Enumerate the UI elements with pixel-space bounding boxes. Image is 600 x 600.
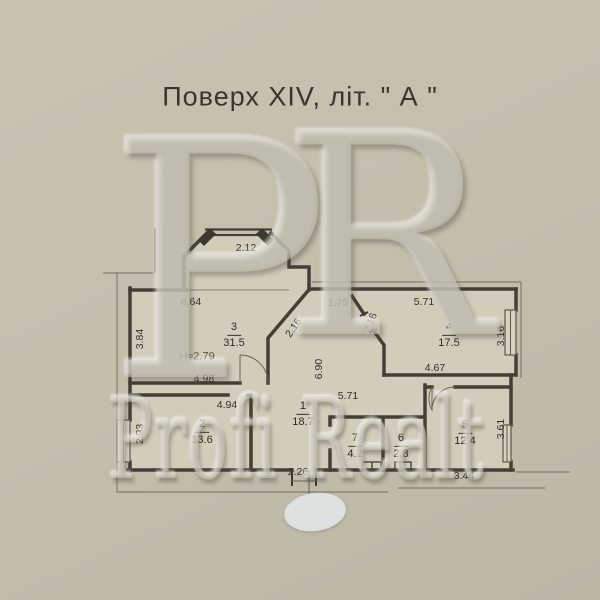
dim-room5-right: 3.61 [496, 419, 507, 439]
dim-room4-top: 5.71 [414, 297, 434, 308]
room-5-number: 5 [458, 419, 472, 434]
room-1-number: 1 [296, 400, 310, 415]
floor-plan-page: Поверх XIV, літ. " А " [0, 0, 600, 600]
room-5-area: 12.4 [454, 435, 475, 448]
room-7-number: 7 [348, 432, 362, 447]
dim-room2-left: 2.93 [135, 424, 146, 444]
room-6-number: 6 [394, 432, 408, 447]
dim-room3-bottom: 4.98 [194, 374, 214, 385]
room-label-5: 5 12.4 [454, 415, 475, 447]
room-2-number: 2 [195, 418, 209, 433]
room-2-area: 13.6 [191, 434, 212, 447]
ceiling-height-note: H≈2.79 [179, 352, 214, 363]
room-3-area: 31.5 [223, 337, 244, 350]
dim-room5-bottom: 3.44 [454, 471, 474, 482]
room-label-4: 4 17.5 [438, 317, 459, 349]
room-label-6: 6 2.8 [393, 428, 408, 460]
room-7-area: 4.2 [347, 448, 362, 461]
room-label-3: 3 31.5 [223, 317, 244, 349]
room-4-area: 17.5 [438, 337, 459, 350]
dim-room4-bottom: 4.67 [425, 363, 445, 374]
dim-room2-top: 4.94 [217, 400, 237, 411]
room-4-number: 4 [442, 321, 456, 336]
room-label-1: 1 18.7 [292, 396, 313, 428]
dim-corridor-top: 1.75 [328, 298, 348, 309]
dim-room4-right: 3.16 [496, 326, 507, 346]
dim-bay-top: 2.12 [236, 243, 256, 254]
room-6-area: 2.8 [393, 448, 408, 461]
dim-room3-left: 3.84 [135, 329, 146, 349]
dim-hall-bottom: 5.71 [338, 391, 358, 402]
room-label-7: 7 4.2 [347, 428, 362, 460]
dim-entrance-width: 2.26 [288, 467, 308, 478]
room-3-number: 3 [227, 321, 241, 336]
dim-room3-top: 6.64 [181, 297, 201, 308]
room-label-2: 2 13.6 [191, 414, 212, 446]
dim-hall-vertical: 6.90 [314, 359, 325, 379]
room-1-area: 18.7 [292, 416, 313, 429]
